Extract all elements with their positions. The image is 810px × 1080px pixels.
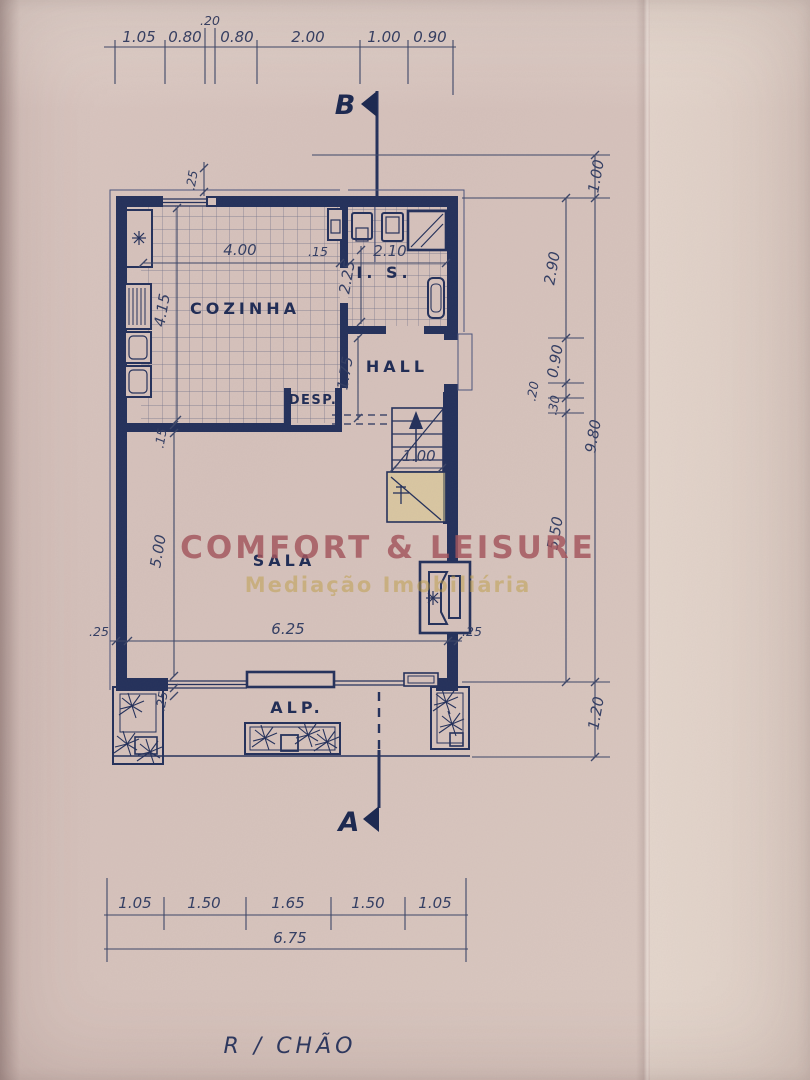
floor-plan-drawing: 1.05 0.80 .20 0.80 2.00 1.00 0.90 B [0,0,810,1080]
paper-grain [0,0,810,1080]
blueprint-photo: 1.05 0.80 .20 0.80 2.00 1.00 0.90 B [0,0,810,1080]
